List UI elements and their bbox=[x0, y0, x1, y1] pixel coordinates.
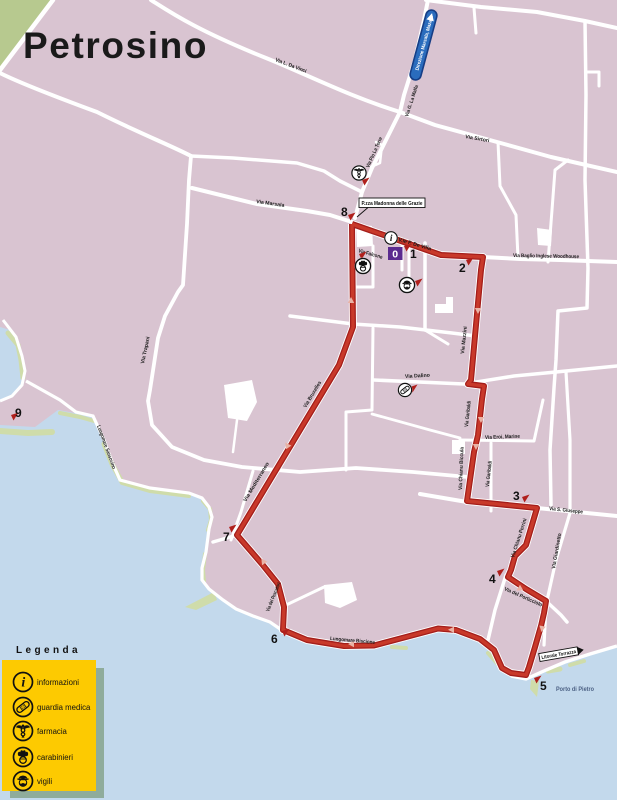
svg-text:6: 6 bbox=[271, 632, 278, 646]
svg-text:P.zza Madonna delle Grazie: P.zza Madonna delle Grazie bbox=[362, 201, 423, 207]
svg-text:carabinieri: carabinieri bbox=[37, 753, 73, 762]
svg-text:8: 8 bbox=[341, 205, 348, 219]
svg-text:vigili: vigili bbox=[37, 777, 52, 786]
svg-text:guardia medica: guardia medica bbox=[37, 703, 91, 712]
svg-text:Porto di Pietro: Porto di Pietro bbox=[556, 686, 594, 693]
svg-text:3: 3 bbox=[513, 489, 520, 503]
svg-text:9: 9 bbox=[15, 406, 22, 420]
svg-text:Petrosino: Petrosino bbox=[23, 25, 208, 66]
svg-text:4: 4 bbox=[489, 572, 496, 586]
svg-text:Via Eroi, Marine: Via Eroi, Marine bbox=[485, 434, 520, 441]
svg-text:1: 1 bbox=[410, 247, 417, 261]
svg-text:Legenda: Legenda bbox=[16, 645, 81, 656]
svg-text:Via Baglio Inglese Woodhouse: Via Baglio Inglese Woodhouse bbox=[513, 253, 579, 260]
svg-text:2: 2 bbox=[459, 261, 466, 275]
svg-text:7: 7 bbox=[223, 530, 230, 544]
svg-text:informazioni: informazioni bbox=[37, 678, 79, 687]
svg-text:farmacia: farmacia bbox=[37, 727, 68, 736]
svg-text:5: 5 bbox=[540, 679, 547, 693]
svg-text:0: 0 bbox=[392, 249, 398, 261]
